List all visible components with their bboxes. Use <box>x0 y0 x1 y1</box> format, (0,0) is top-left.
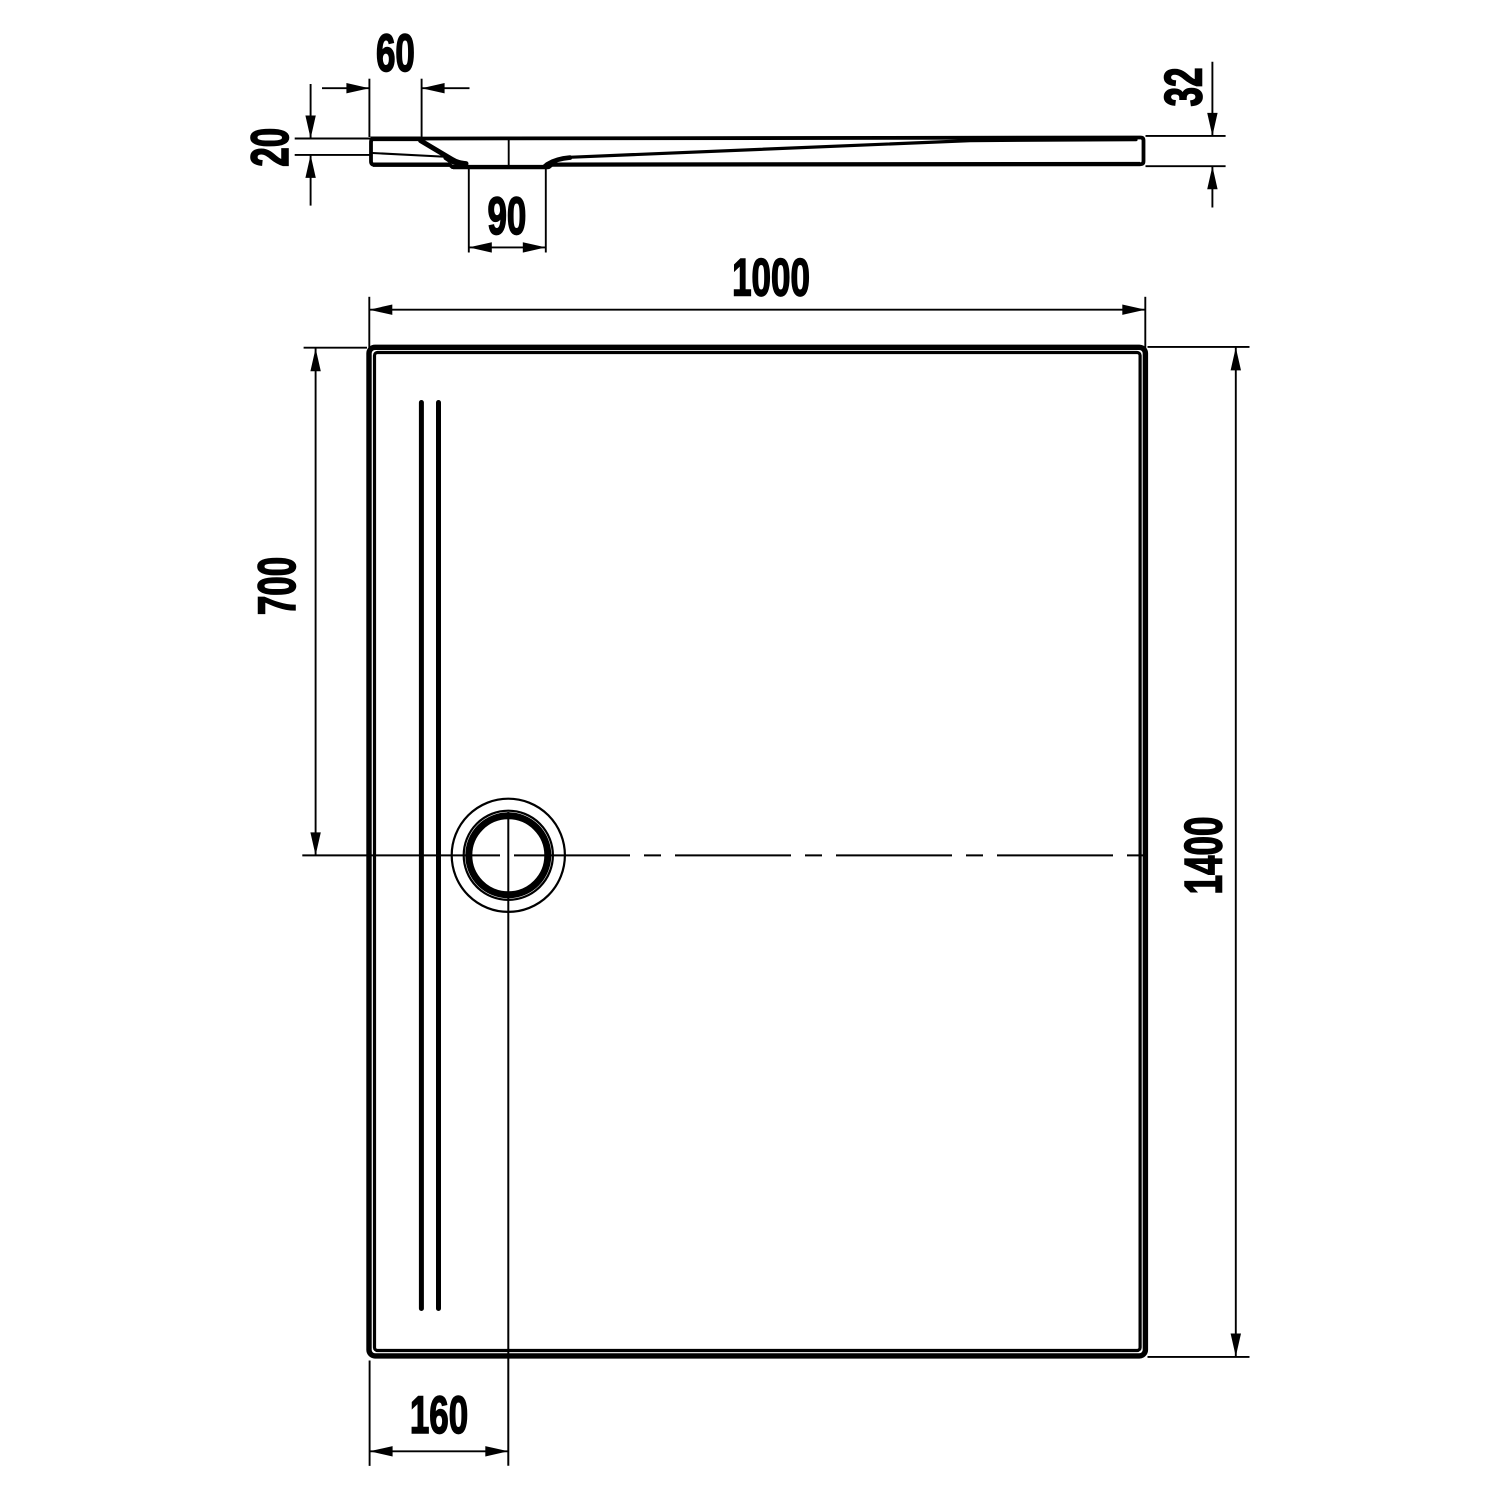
svg-text:90: 90 <box>487 187 526 246</box>
svg-text:32: 32 <box>1154 68 1213 107</box>
svg-text:1000: 1000 <box>732 248 810 307</box>
svg-text:160: 160 <box>410 1386 468 1445</box>
svg-text:60: 60 <box>376 24 415 83</box>
svg-text:700: 700 <box>248 557 307 615</box>
svg-text:20: 20 <box>241 128 300 167</box>
svg-text:1400: 1400 <box>1174 817 1233 895</box>
